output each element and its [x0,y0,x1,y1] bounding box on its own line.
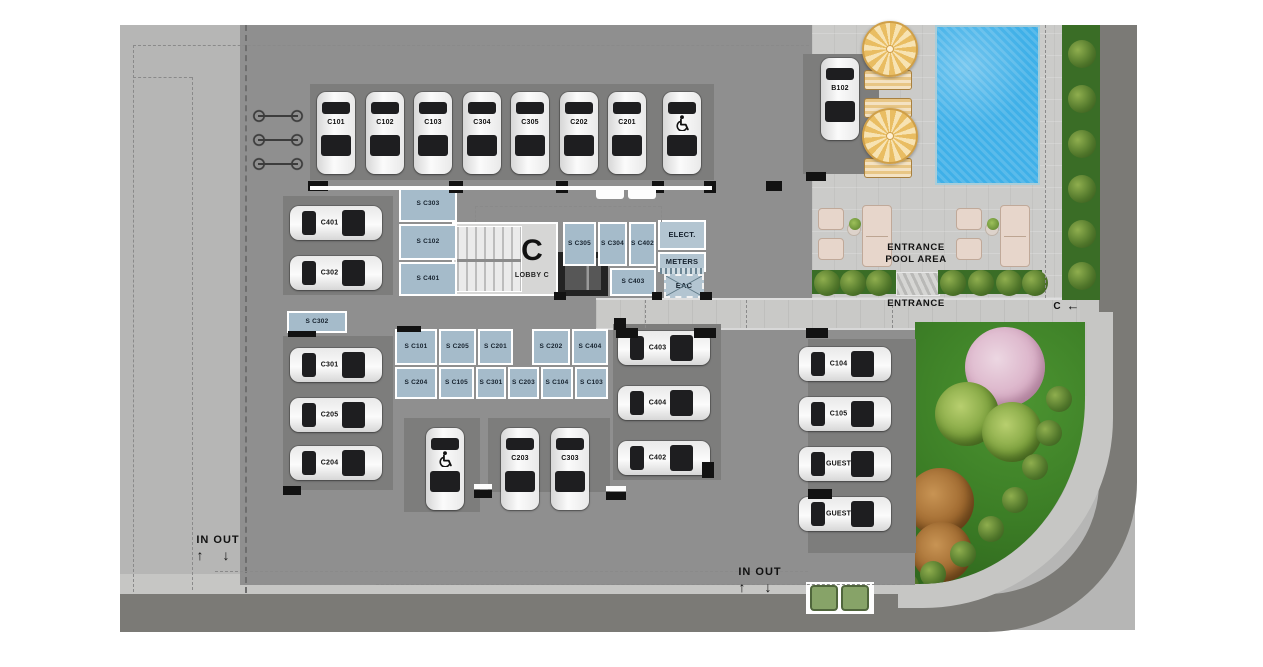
car-label: C301 [317,362,343,369]
car-label: C102 [366,119,404,126]
plan-text: ENTRANCE [866,243,966,254]
lawn-edge-bush [1002,487,1028,513]
car-C201: C201 [608,92,646,174]
car-windshield [851,451,874,477]
car-handicap-spot [663,92,701,174]
column [808,489,832,499]
room-ELECT: ELECT. [658,220,706,250]
car-windshield [430,471,460,492]
car-rear-glass [431,438,459,450]
plan-text: ← [1062,299,1084,314]
hedge-bush [866,270,892,296]
column [766,181,782,191]
curb [596,187,624,199]
car-C402: C402 [618,441,710,475]
patio-chair [818,208,844,230]
hedge-bush [996,270,1022,296]
car-C205: C205 [290,398,382,432]
boundary-dashed-line [746,300,747,328]
boundary-dashed-line [1045,25,1046,298]
boundary-dashed-line [215,571,808,572]
car-label: C304 [463,119,501,126]
lawn-edge-bush [920,561,946,584]
curb [474,484,492,489]
car-rear-glass [302,261,316,285]
car-rear-glass [302,403,316,427]
hedge-bush [1068,220,1096,248]
car-C301: C301 [290,348,382,382]
car-C401: C401 [290,206,382,240]
storage-room-SC205: S C205 [439,329,476,365]
column [694,328,716,338]
car-rear-glass [811,502,825,526]
car-C103: C103 [414,92,452,174]
car-windshield [342,352,365,378]
column [606,492,626,500]
bicycle-icon [250,108,306,124]
car-C101: C101 [317,92,355,174]
lawn-edge-bush [978,516,1004,542]
car-rear-glass [811,352,825,376]
storage-room-SC301: S C301 [476,367,506,399]
car-label: C402 [645,455,671,462]
plan-text: ↓ [216,547,236,563]
car-label: C302 [317,270,343,277]
pool-umbrella [862,108,918,164]
car-label: C201 [608,119,646,126]
boundary-dashed-line [245,25,247,593]
car-windshield [467,135,497,156]
car-label: GUEST [826,511,852,518]
car-C202: C202 [560,92,598,174]
plan-text: ↑ [732,579,752,595]
car-C102: C102 [366,92,404,174]
lawn-edge-bush [950,541,976,567]
car-windshield [515,135,545,156]
lobby-label: LOBBY C [500,272,564,279]
hedge-bush [1068,40,1096,68]
boundary-dashed-line [475,206,661,207]
lobby-letter: C [512,234,552,269]
curb [606,486,626,491]
storage-room-SC101: S C101 [395,329,437,365]
plan-text: ↑ [190,547,210,563]
storage-room-SC104: S C104 [541,367,573,399]
storage-room-SC304: S C304 [598,222,627,266]
handicap-symbol [663,115,701,131]
car-windshield [851,501,874,527]
swimming-pool [935,25,1040,185]
car-label: C103 [414,119,452,126]
patio-plant [987,218,999,230]
wheelchair-icon [675,115,689,131]
car-rear-glass [630,446,644,470]
eac-cross-brace [666,276,702,296]
plan-text: IN OUT [186,534,250,547]
car-GUEST: GUEST [799,497,891,531]
storage-room-SC102: S C102 [399,224,457,260]
car-label: C205 [317,412,343,419]
room-EAC: EAC [664,274,704,298]
car-label: C101 [317,119,355,126]
car-windshield [670,335,693,361]
car-C303: C303 [551,428,589,510]
car-rear-glass [613,102,641,114]
hedge-bush [1068,262,1096,290]
plan-text: IN OUT [728,566,792,579]
car-rear-glass [811,402,825,426]
site-plan-canvas: C LOBBY C S C303S C102S C401S C305S C304… [0,0,1263,667]
car-label: C404 [645,400,671,407]
car-label: C403 [645,345,671,352]
plan-root: C LOBBY C S C303S C102S C401S C305S C304… [0,0,1263,667]
handicap-symbol [426,451,464,467]
car-windshield [505,471,535,492]
meters-hatch [660,268,704,274]
column [702,462,714,478]
car-rear-glass [811,452,825,476]
car-rear-glass [506,438,534,450]
boundary-dashed-line [133,45,809,46]
waste-bin [810,585,838,611]
car-windshield [851,401,874,427]
car-C204: C204 [290,446,382,480]
patio-plant [849,218,861,230]
hedge-bush [814,270,840,296]
car-windshield [342,402,365,428]
car-C404: C404 [618,386,710,420]
car-windshield [342,210,365,236]
car-label: C305 [511,119,549,126]
column [652,292,662,300]
car-B102: B102 [821,58,859,140]
car-rear-glass [668,102,696,114]
car-C304: C304 [463,92,501,174]
storage-room-SC202: S C202 [532,329,570,365]
column [554,292,566,300]
column [614,318,626,330]
car-rear-glass [826,68,854,80]
patio-chair [956,208,982,230]
car-C105: C105 [799,397,891,431]
car-GUEST: GUEST [799,447,891,481]
lawn-edge-bush [1046,386,1072,412]
column [700,292,712,300]
car-label: C203 [501,455,539,462]
plan-text: POOL AREA [866,255,966,266]
car-rear-glass [419,102,447,114]
car-windshield [321,135,351,156]
hedge-bush [968,270,994,296]
waste-bin [841,585,869,611]
patio-chair [818,238,844,260]
car-windshield [555,471,585,492]
car-rear-glass [630,336,644,360]
car-rear-glass [556,438,584,450]
column [283,486,301,495]
car-C305: C305 [511,92,549,174]
boundary-dashed-line [661,206,662,222]
hedge-bush [1068,175,1096,203]
car-label: C401 [317,220,343,227]
boundary-dashed-line [645,300,646,328]
car-windshield [564,135,594,156]
lawn-edge-bush [1022,454,1048,480]
column [288,331,316,337]
entrance-steps [896,272,940,296]
car-rear-glass [302,211,316,235]
curb [628,187,656,199]
storage-room-SC305: S C305 [563,222,596,266]
car-windshield [342,260,365,286]
car-label: GUEST [826,461,852,468]
boundary-dashed-line [376,584,900,585]
car-label: C303 [551,455,589,462]
car-handicap-spot [426,428,464,510]
car-windshield [342,450,365,476]
car-C203: C203 [501,428,539,510]
car-windshield [667,135,697,156]
car-label: C104 [826,361,852,368]
column [474,490,492,498]
car-rear-glass [468,102,496,114]
boundary-dashed-line [192,77,193,590]
plan-text: ENTRANCE [870,299,962,310]
hedge-bush [940,270,966,296]
boundary-dashed-line [475,206,476,222]
storage-room-SC402: S C402 [629,222,656,266]
storage-room-SC302: S C302 [287,311,347,333]
column [806,328,828,338]
storage-room-SC201: S C201 [478,329,513,365]
column [806,172,826,181]
car-C302: C302 [290,256,382,290]
hedge-bush [1068,85,1096,113]
car-windshield [670,390,693,416]
car-windshield [851,351,874,377]
car-rear-glass [630,391,644,415]
boundary-dashed-line [133,45,134,592]
car-C104: C104 [799,347,891,381]
lawn-edge-bush [1036,420,1062,446]
boundary-dashed-line [133,77,192,78]
car-rear-glass [302,451,316,475]
sofa [1000,205,1030,267]
car-label: B102 [821,85,859,92]
car-label: C202 [560,119,598,126]
car-rear-glass [371,102,399,114]
car-windshield [418,135,448,156]
hedge-bush [840,270,866,296]
car-label: C105 [826,411,852,418]
car-rear-glass [565,102,593,114]
plan-text: ↓ [758,579,778,595]
bicycle-icon [250,132,306,148]
lawn-edge-bush [915,573,919,584]
hedge-bush [1068,130,1096,158]
tree-green [982,402,1042,462]
storage-room-SC404: S C404 [572,329,608,365]
car-windshield [612,135,642,156]
car-windshield [825,101,855,122]
storage-room-SC203: S C203 [508,367,539,399]
storage-room-SC103: S C103 [575,367,608,399]
pool-umbrella [862,21,918,77]
car-rear-glass [302,353,316,377]
car-rear-glass [516,102,544,114]
car-rear-glass [322,102,350,114]
storage-room-SC105: S C105 [439,367,474,399]
wheelchair-icon [438,451,452,467]
storage-room-SC403: S C403 [610,268,656,296]
column [397,326,421,332]
storage-room-SC401: S C401 [399,262,457,296]
car-windshield [370,135,400,156]
hedge-strip-east [1062,25,1100,300]
car-windshield [670,445,693,471]
car-label: C204 [317,460,343,467]
bicycle-icon [250,156,306,172]
storage-room-SC204: S C204 [395,367,437,399]
